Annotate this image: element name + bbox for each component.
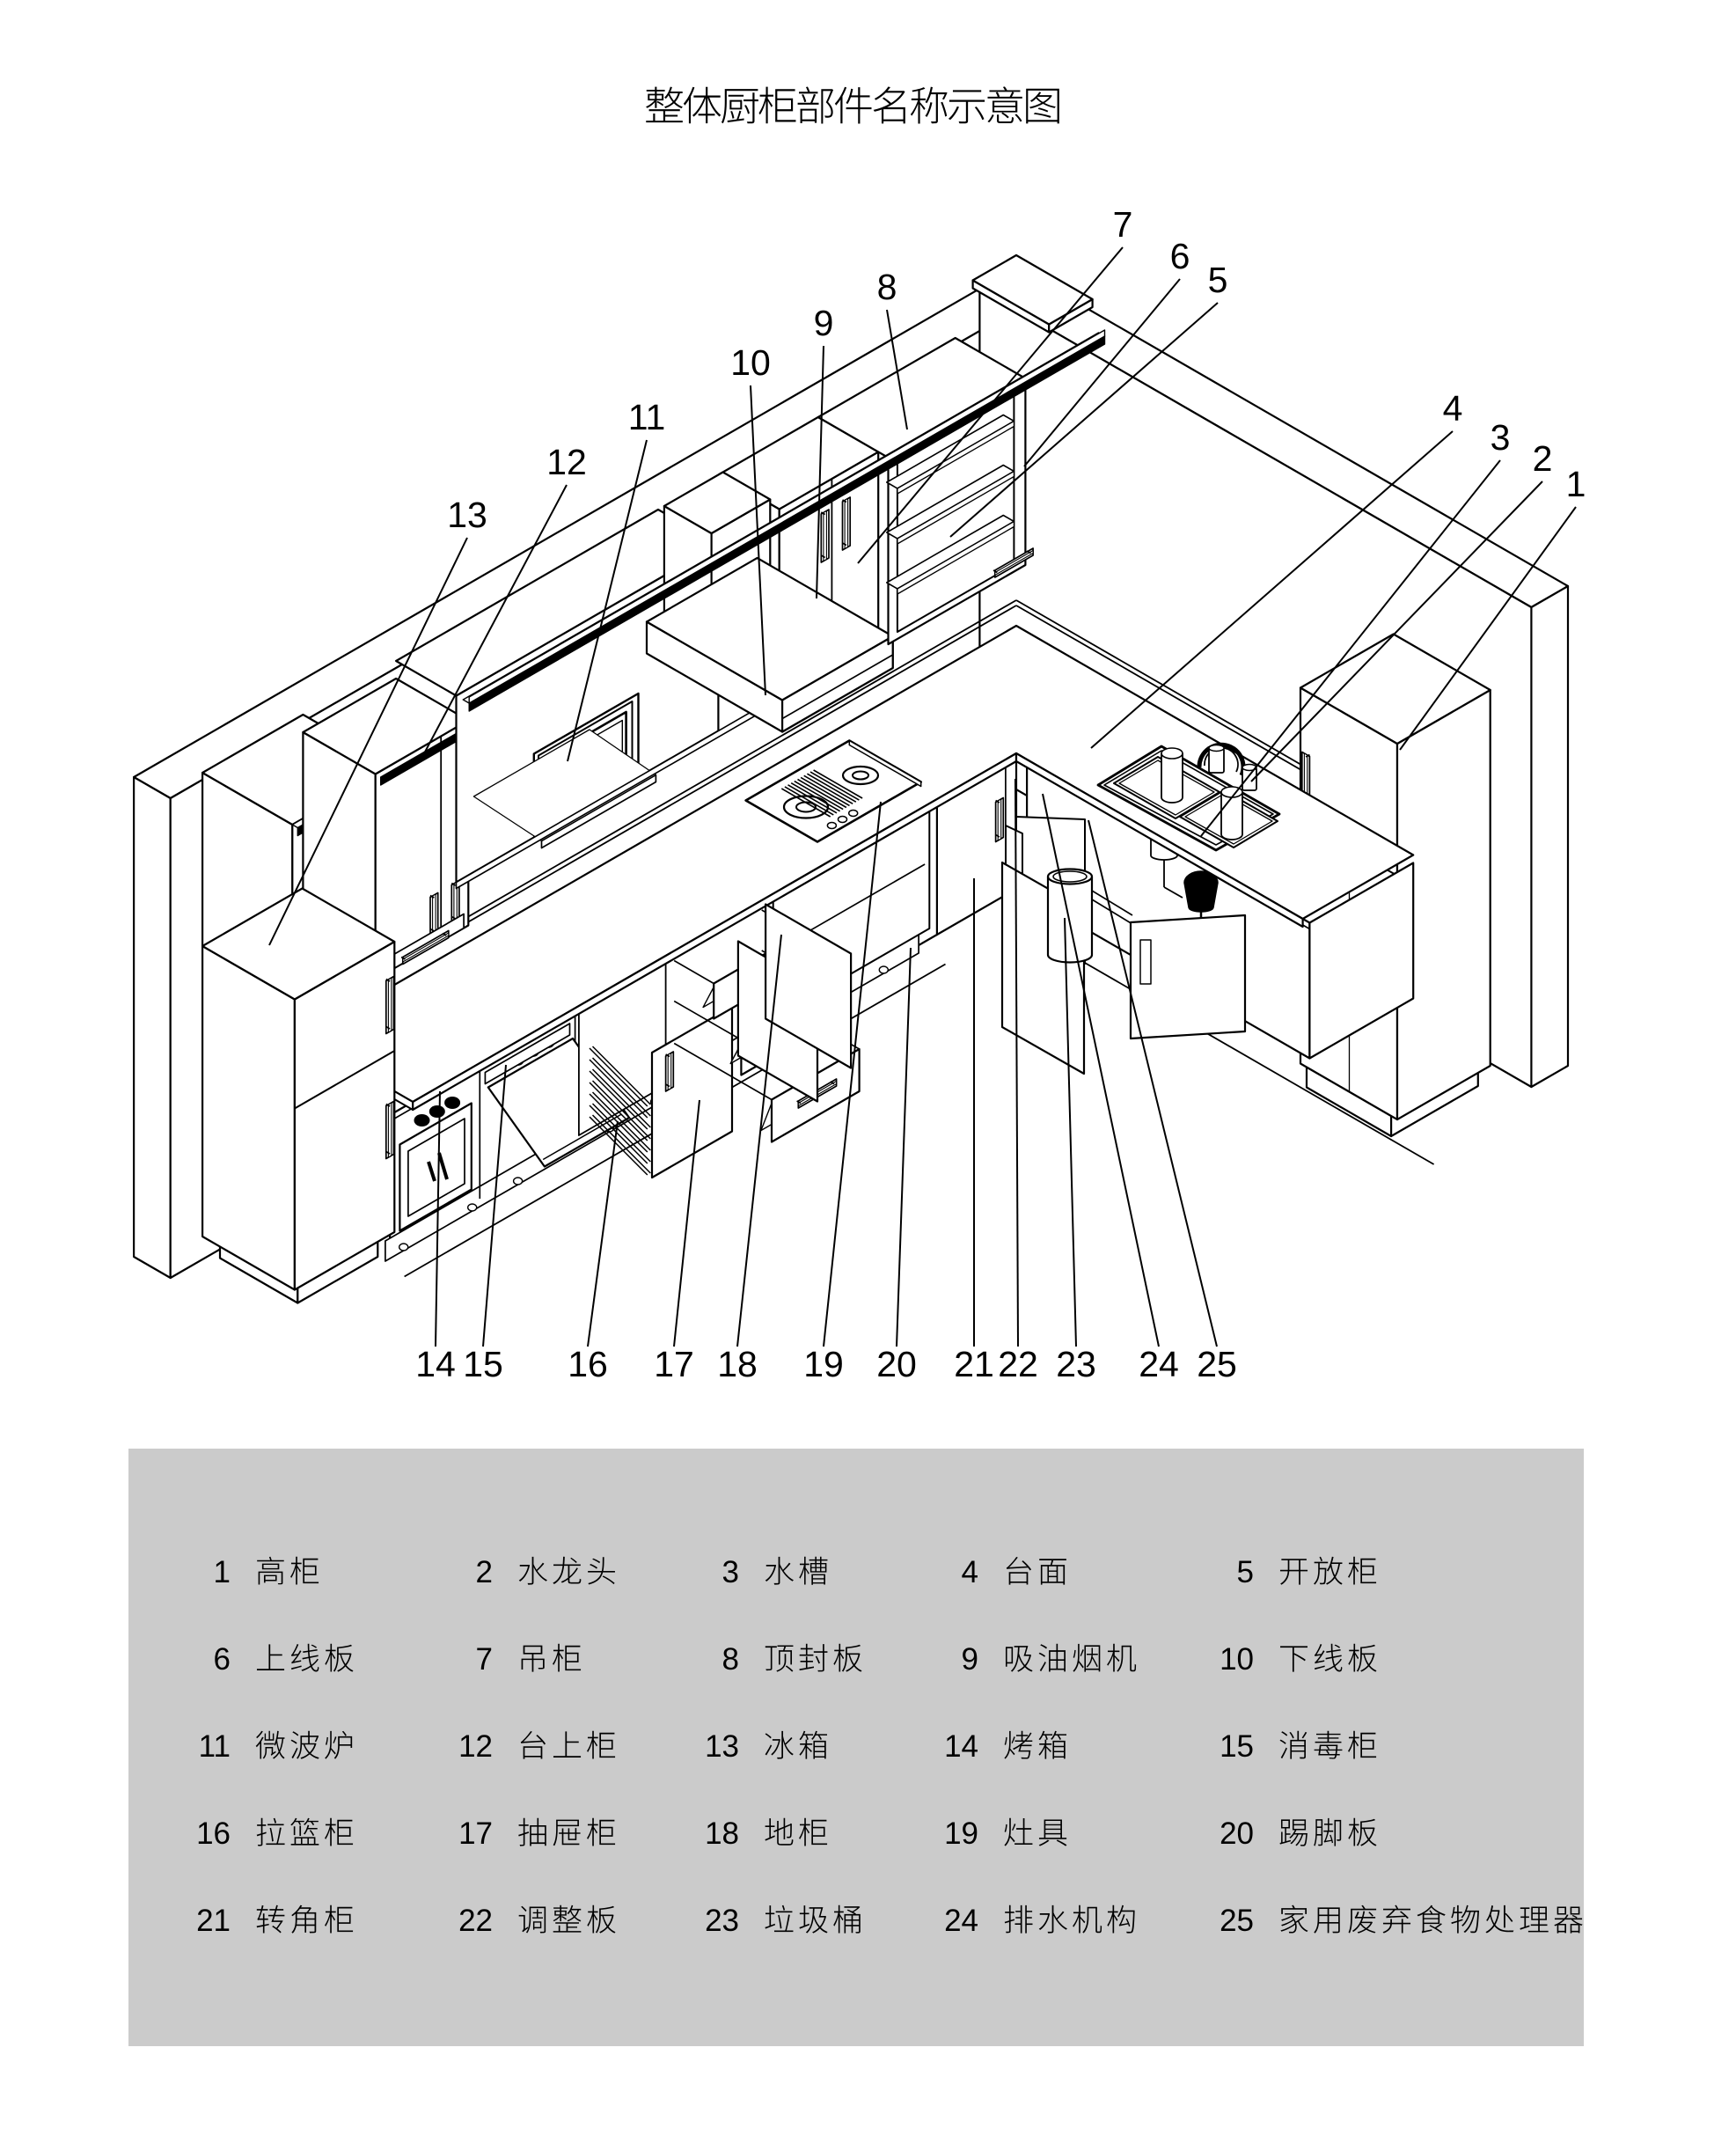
svg-text:11: 11 xyxy=(199,1729,231,1764)
svg-text:9: 9 xyxy=(814,303,834,343)
svg-text:25: 25 xyxy=(1220,1904,1254,1938)
svg-text:13: 13 xyxy=(705,1729,739,1764)
svg-text:16: 16 xyxy=(196,1816,231,1851)
svg-text:1: 1 xyxy=(214,1555,231,1589)
svg-text:10: 10 xyxy=(1220,1642,1254,1677)
svg-text:14: 14 xyxy=(415,1344,456,1384)
svg-text:15: 15 xyxy=(1220,1729,1254,1764)
svg-text:21: 21 xyxy=(954,1344,994,1384)
svg-text:8: 8 xyxy=(722,1642,739,1677)
svg-text:3: 3 xyxy=(722,1555,739,1589)
svg-text:12: 12 xyxy=(458,1729,493,1764)
svg-text:17: 17 xyxy=(654,1344,694,1384)
svg-text:4: 4 xyxy=(962,1555,978,1589)
svg-text:19: 19 xyxy=(944,1816,978,1851)
svg-text:17: 17 xyxy=(458,1816,493,1851)
svg-text:21: 21 xyxy=(196,1904,231,1938)
svg-text:14: 14 xyxy=(944,1729,978,1764)
svg-text:13: 13 xyxy=(447,495,487,535)
svg-text:3: 3 xyxy=(1491,417,1511,458)
svg-text:23: 23 xyxy=(705,1904,739,1938)
svg-text:7: 7 xyxy=(1113,204,1133,245)
svg-text:24: 24 xyxy=(944,1904,978,1938)
svg-text:5: 5 xyxy=(1237,1555,1254,1589)
svg-text:1: 1 xyxy=(1566,464,1586,504)
svg-text:18: 18 xyxy=(717,1344,758,1384)
svg-text:22: 22 xyxy=(998,1344,1038,1384)
svg-text:6: 6 xyxy=(214,1642,231,1677)
svg-text:16: 16 xyxy=(568,1344,608,1384)
svg-text:2: 2 xyxy=(1533,438,1553,479)
svg-text:20: 20 xyxy=(1220,1816,1254,1851)
svg-text:18: 18 xyxy=(705,1816,739,1851)
svg-text:12: 12 xyxy=(546,442,587,482)
svg-text:15: 15 xyxy=(463,1344,503,1384)
svg-text:23: 23 xyxy=(1056,1344,1096,1384)
svg-text:4: 4 xyxy=(1443,388,1463,429)
svg-text:8: 8 xyxy=(877,267,897,307)
svg-text:11: 11 xyxy=(628,397,666,437)
svg-text:19: 19 xyxy=(803,1344,844,1384)
svg-text:22: 22 xyxy=(458,1904,493,1938)
svg-text:20: 20 xyxy=(876,1344,917,1384)
svg-text:24: 24 xyxy=(1139,1344,1179,1384)
svg-text:9: 9 xyxy=(962,1642,978,1677)
svg-text:7: 7 xyxy=(476,1642,493,1677)
svg-text:5: 5 xyxy=(1208,260,1228,300)
svg-text:10: 10 xyxy=(730,342,771,383)
svg-text:25: 25 xyxy=(1197,1344,1237,1384)
svg-text:6: 6 xyxy=(1170,236,1190,276)
svg-text:2: 2 xyxy=(476,1555,493,1589)
